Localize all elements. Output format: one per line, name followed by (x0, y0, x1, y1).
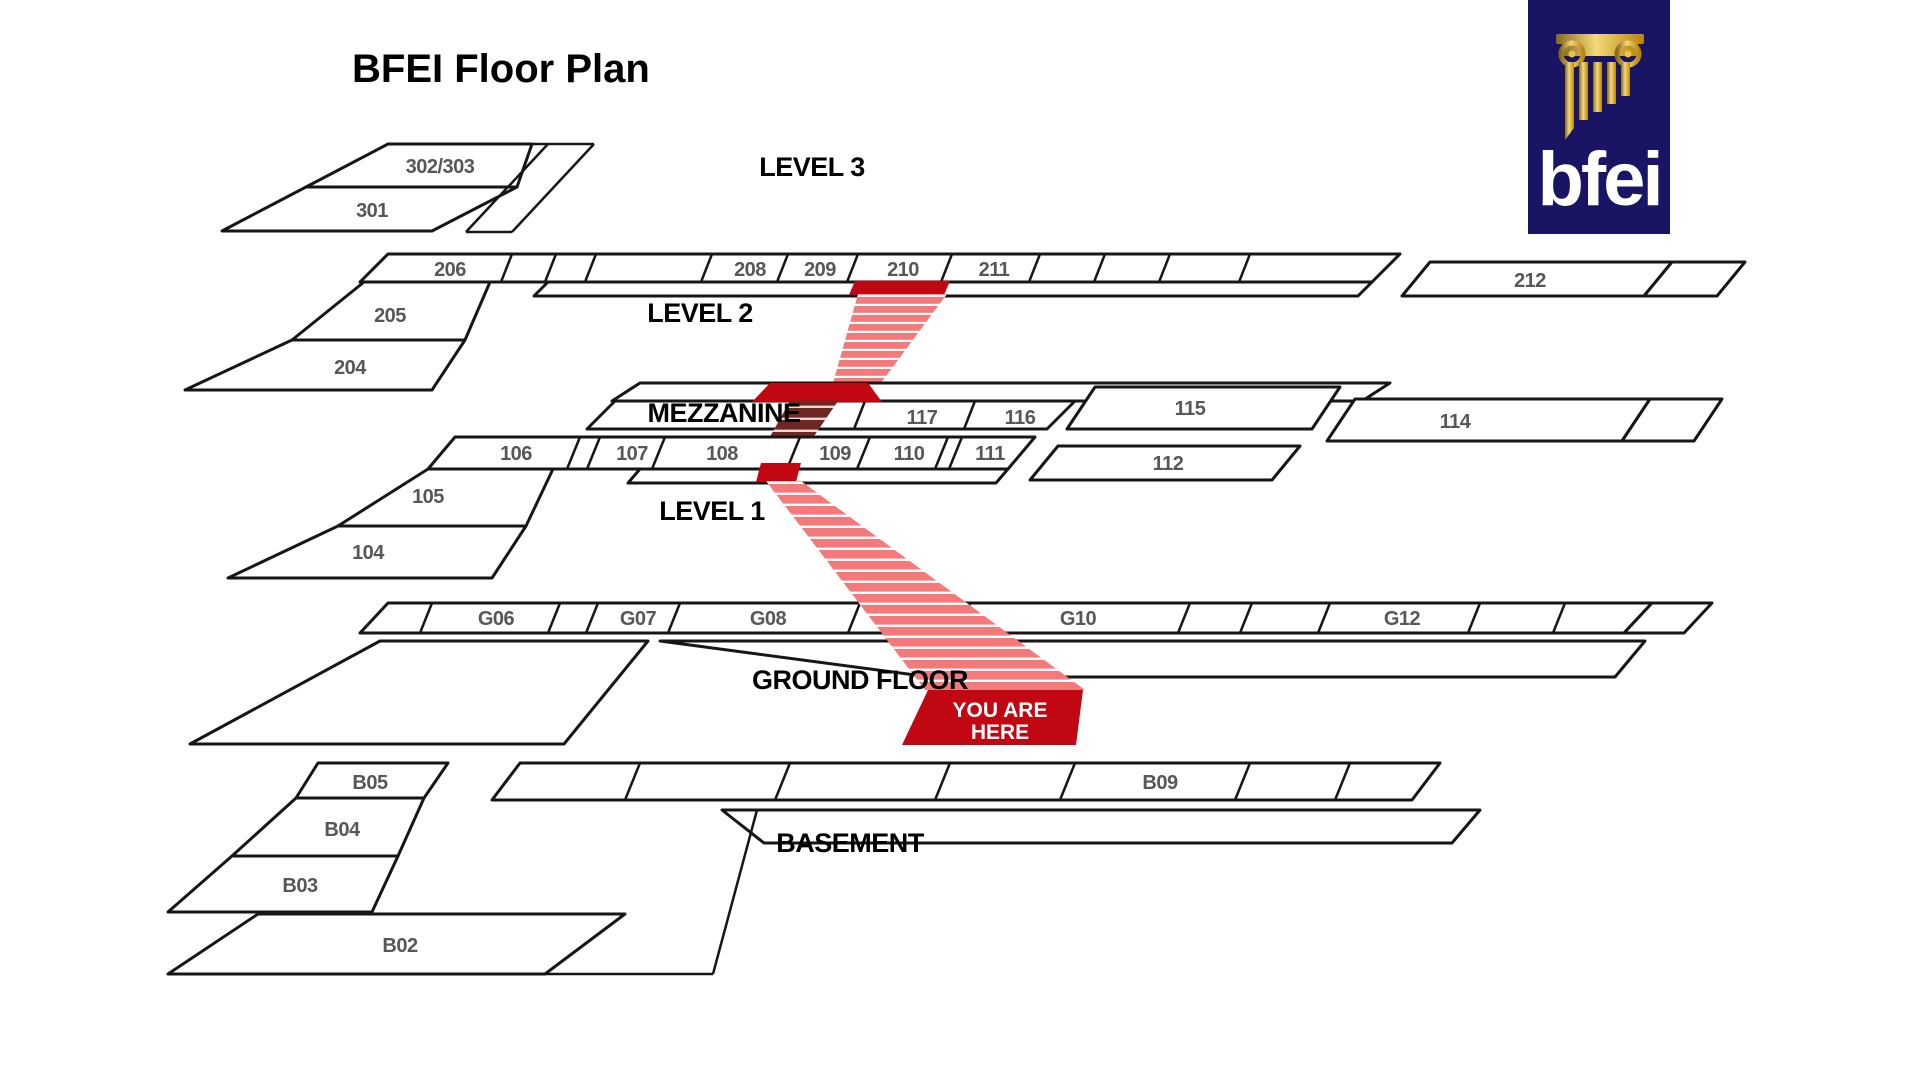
room-label-108: 108 (706, 443, 738, 465)
basement-label: BASEMENT (776, 828, 925, 858)
room-label-b05: B05 (352, 772, 388, 794)
you-are-here-marker: YOU ARE HERE (902, 690, 1083, 745)
you-are-here-line1: YOU ARE (953, 699, 1048, 722)
room-label-g12: G12 (1384, 608, 1421, 630)
room-label-117: 117 (907, 407, 938, 429)
room-114-strip (1327, 399, 1650, 441)
room-label-b03: B03 (282, 875, 318, 897)
level2-label: LEVEL 2 (647, 298, 753, 328)
basement-void-right-edge (713, 810, 757, 974)
room-label-b09: B09 (1142, 772, 1178, 794)
room-label-g08: G08 (750, 608, 787, 630)
level1-floor: 106 105 104 107 108 109 110 111 112 LEVE… (228, 437, 1300, 578)
stairs-level2-to-mezzanine (833, 294, 947, 383)
level2-floor: 206 205 204 208 209 210 211 212 LEVEL 2 (185, 254, 1745, 390)
room-label-g10: G10 (1060, 608, 1097, 630)
room-204 (185, 340, 465, 390)
logo-text: bfei (1537, 137, 1660, 222)
room-label-302-303: 302/303 (406, 156, 475, 178)
room-label-107: 107 (616, 443, 648, 465)
room-label-210: 210 (887, 259, 919, 281)
room-label-105: 105 (412, 486, 444, 508)
room-label-211: 211 (979, 259, 1010, 281)
floor-plan-page: BFEI Floor Plan 302/303 301 LEVEL 3 (0, 0, 1922, 1080)
level3-floor: 302/303 301 LEVEL 3 (222, 144, 865, 232)
room-label-212: 212 (1514, 270, 1546, 292)
room-label-109: 109 (819, 443, 851, 465)
room-label-209: 209 (804, 259, 836, 281)
page-title: BFEI Floor Plan (352, 47, 650, 91)
level3-label: LEVEL 3 (759, 152, 865, 182)
room-label-g06: G06 (478, 608, 515, 630)
room-label-111: 111 (975, 443, 1005, 465)
room-label-110: 110 (894, 443, 925, 465)
room-label-b02: B02 (382, 935, 418, 957)
level2-hall-band (534, 282, 1372, 296)
mezzanine-label: MEZZANINE (648, 398, 801, 428)
room-label-208: 208 (734, 259, 766, 281)
room-label-104: 104 (352, 542, 385, 564)
level2-stair-landing (849, 281, 950, 295)
room-label-205: 205 (374, 305, 406, 327)
room-label-115: 115 (1175, 398, 1206, 420)
room-label-g07: G07 (620, 608, 657, 630)
you-are-here-line2: HERE (971, 721, 1029, 744)
room-label-112: 112 (1153, 453, 1184, 475)
room-label-114: 114 (1440, 411, 1472, 433)
room-label-106: 106 (500, 443, 532, 465)
room-label-301: 301 (356, 200, 388, 222)
basement-room-strip (492, 763, 1440, 800)
level1-stair-landing (756, 463, 801, 482)
room-label-116: 116 (1005, 407, 1036, 429)
basement-floor: B05 B04 B03 B02 B09 BASEMENT (168, 763, 1480, 974)
room-105 (338, 469, 553, 526)
floor-plan-svg: BFEI Floor Plan 302/303 301 LEVEL 3 (0, 0, 1922, 1080)
level1-hall-band (628, 469, 1008, 483)
level1-label: LEVEL 1 (659, 496, 765, 526)
room-label-206: 206 (434, 259, 466, 281)
room-label-204: 204 (334, 357, 367, 379)
room-label-b04: B04 (324, 819, 361, 841)
bfei-logo: bfei (1528, 0, 1670, 234)
ground-left-wing (190, 641, 648, 744)
